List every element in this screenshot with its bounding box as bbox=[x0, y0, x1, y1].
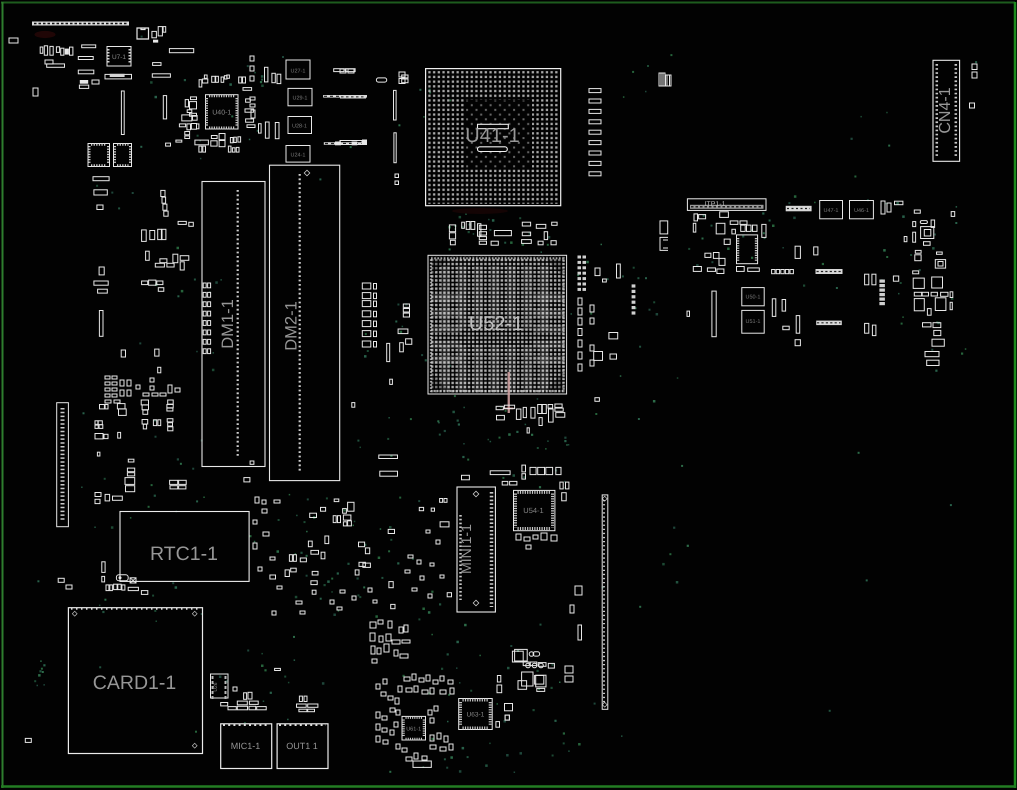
svg-text:DM2-1: DM2-1 bbox=[283, 301, 301, 351]
svg-text:MINI1-1: MINI1-1 bbox=[458, 524, 474, 574]
svg-text:CN4-1: CN4-1 bbox=[937, 87, 954, 133]
svg-text:U52-1: U52-1 bbox=[469, 313, 523, 335]
svg-text:U27-1: U27-1 bbox=[291, 68, 306, 74]
svg-text:U24-1: U24-1 bbox=[291, 152, 306, 158]
svg-text:OUT1 1: OUT1 1 bbox=[286, 741, 318, 751]
svg-text:U29-1: U29-1 bbox=[293, 95, 308, 101]
svg-text:U50-1: U50-1 bbox=[746, 294, 761, 300]
svg-text:U7-1: U7-1 bbox=[112, 54, 126, 61]
svg-text:ITP1-1: ITP1-1 bbox=[704, 201, 725, 208]
svg-text:U47-1: U47-1 bbox=[824, 208, 839, 214]
svg-text:U26: U26 bbox=[213, 682, 219, 691]
svg-text:U41-1: U41-1 bbox=[465, 125, 519, 147]
svg-text:RTC1-1: RTC1-1 bbox=[150, 543, 218, 565]
svg-text:DM1-1: DM1-1 bbox=[219, 299, 237, 349]
svg-text:U28-1: U28-1 bbox=[292, 123, 307, 129]
svg-text:CARD1-1: CARD1-1 bbox=[93, 672, 176, 694]
svg-text:U51-1: U51-1 bbox=[746, 319, 761, 325]
svg-text:U61-1: U61-1 bbox=[406, 726, 421, 732]
svg-text:U40-1: U40-1 bbox=[212, 109, 231, 116]
svg-text:U63-1: U63-1 bbox=[467, 711, 485, 718]
svg-text:U46-1: U46-1 bbox=[854, 208, 869, 214]
svg-text:U54-1: U54-1 bbox=[523, 506, 543, 515]
svg-text:MIC1-1: MIC1-1 bbox=[231, 741, 261, 751]
